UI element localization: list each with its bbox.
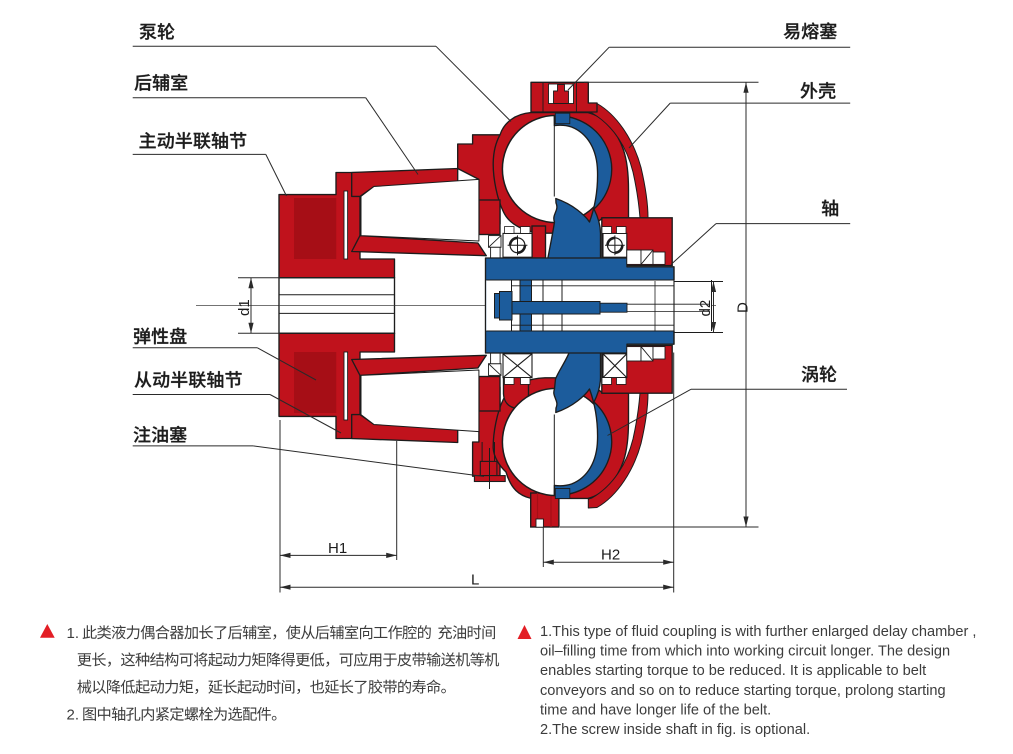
svg-text:d1: d1 <box>236 299 253 316</box>
svg-text:1.: 1. <box>67 625 80 642</box>
svg-text:2.The screw inside shaft in fi: 2.The screw inside shaft in fig. is opti… <box>540 722 810 738</box>
svg-text:H1: H1 <box>328 540 347 557</box>
svg-text:L: L <box>471 572 479 589</box>
svg-text:H2: H2 <box>601 547 620 564</box>
svg-text:oil–filling time from which in: oil–filling time from which into working… <box>540 644 950 660</box>
svg-text:D: D <box>735 302 752 313</box>
svg-text:1.This type of fluid coupling: 1.This type of fluid coupling is with fu… <box>540 624 976 640</box>
svg-text:enables starting torque to be: enables starting torque to be reduced. I… <box>540 663 926 679</box>
svg-text:time and have longer life of t: time and have longer life of the belt. <box>540 702 771 718</box>
svg-text:2.: 2. <box>67 707 80 724</box>
svg-text:d2: d2 <box>697 300 714 317</box>
svg-text:conveyors and so on to reduce: conveyors and so on to reduce starting t… <box>540 683 946 699</box>
